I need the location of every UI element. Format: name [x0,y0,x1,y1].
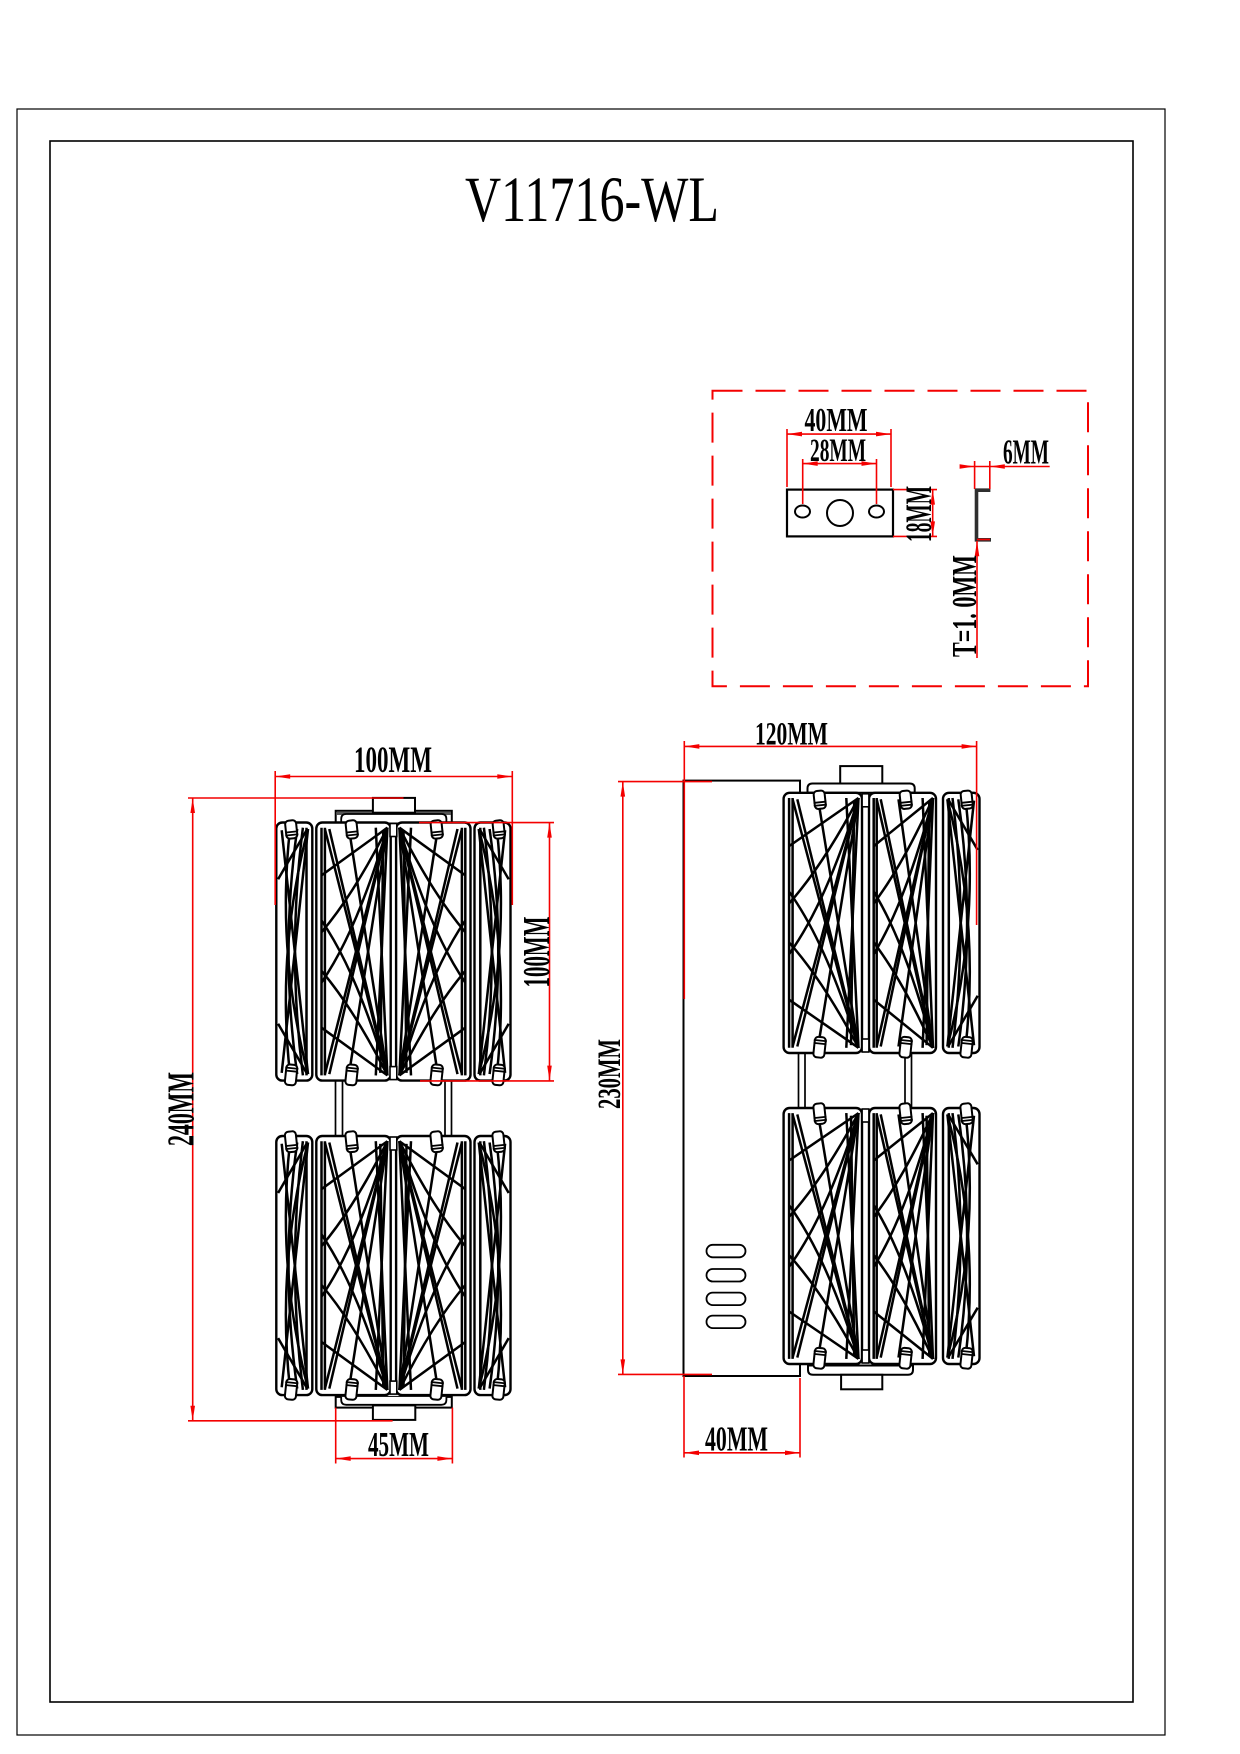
svg-text:V11716-WL: V11716-WL [465,163,719,235]
svg-text:6MM: 6MM [1003,432,1049,472]
svg-text:45MM: 45MM [368,1424,429,1464]
svg-text:28MM: 28MM [810,432,866,468]
svg-text:40MM: 40MM [705,1419,768,1459]
svg-text:18MM: 18MM [898,486,939,542]
svg-text:100MM: 100MM [354,739,432,780]
svg-text:120MM: 120MM [755,716,828,752]
svg-text:100MM: 100MM [516,917,558,988]
svg-text:230MM: 230MM [591,1039,627,1109]
svg-text:T=1. 0MM: T=1. 0MM [944,555,984,657]
svg-text:240MM: 240MM [161,1072,203,1146]
